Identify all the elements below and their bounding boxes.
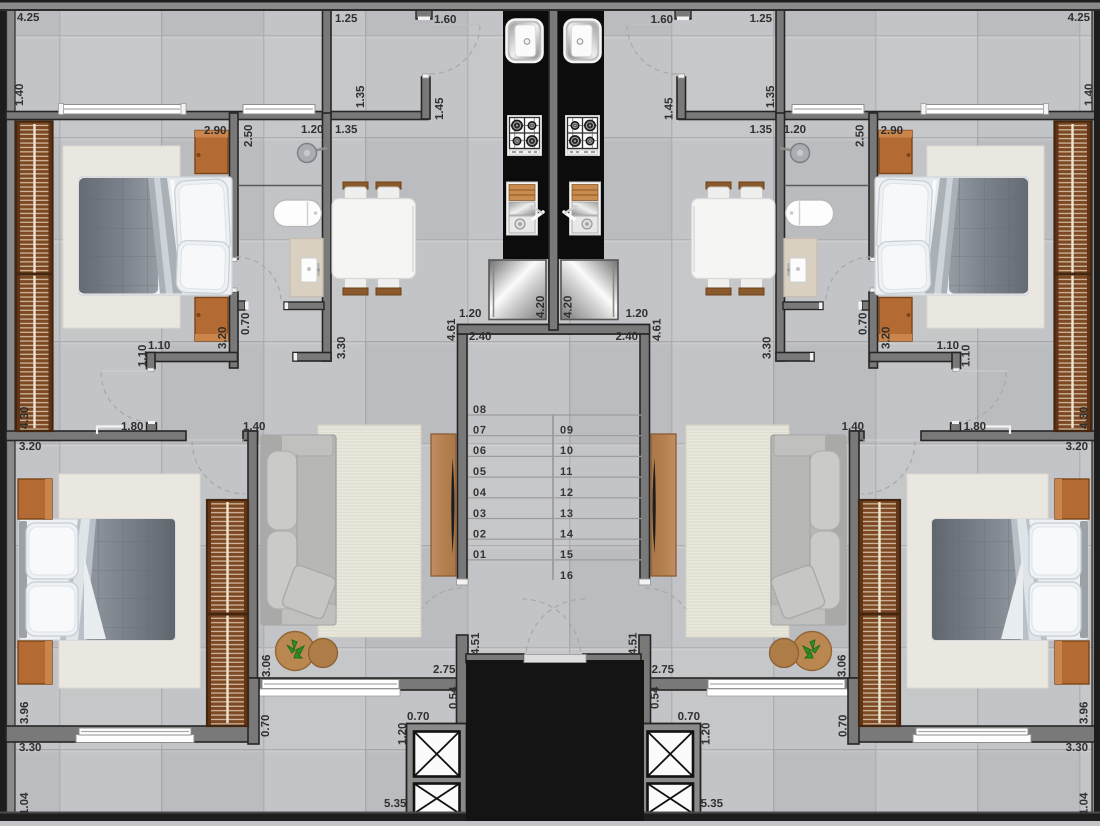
- svg-text:2.90: 2.90: [881, 125, 903, 137]
- svg-text:1.25: 1.25: [335, 13, 358, 25]
- svg-text:4.30: 4.30: [19, 407, 31, 429]
- svg-text:3.20: 3.20: [217, 327, 229, 349]
- svg-text:02: 02: [473, 529, 487, 541]
- svg-text:11: 11: [560, 466, 573, 478]
- svg-text:0.70: 0.70: [260, 715, 272, 737]
- svg-text:5.35: 5.35: [384, 798, 407, 810]
- svg-text:05: 05: [473, 466, 487, 478]
- svg-text:0.70: 0.70: [678, 711, 700, 723]
- svg-text:1.20: 1.20: [301, 124, 323, 136]
- svg-text:1.20: 1.20: [397, 723, 409, 745]
- svg-text:0.70: 0.70: [407, 711, 429, 723]
- svg-text:2.50: 2.50: [243, 125, 255, 147]
- svg-text:1.10: 1.10: [137, 345, 149, 367]
- svg-text:4.25: 4.25: [17, 12, 40, 24]
- svg-text:2.50: 2.50: [855, 125, 867, 147]
- svg-text:4.20: 4.20: [563, 296, 575, 318]
- svg-text:5.35: 5.35: [701, 798, 724, 810]
- svg-text:1.40: 1.40: [14, 84, 26, 106]
- svg-text:0.70: 0.70: [240, 313, 252, 335]
- svg-text:3.20: 3.20: [881, 327, 893, 349]
- svg-text:16: 16: [560, 570, 574, 582]
- svg-text:2.90: 2.90: [204, 125, 226, 137]
- svg-text:1.45: 1.45: [434, 97, 446, 120]
- svg-text:3.30: 3.30: [336, 337, 348, 359]
- svg-text:1.20: 1.20: [626, 308, 648, 320]
- svg-text:0.54: 0.54: [650, 686, 662, 709]
- svg-text:3.30: 3.30: [762, 337, 774, 359]
- svg-text:04: 04: [473, 487, 487, 499]
- svg-text:4.51: 4.51: [628, 632, 640, 655]
- svg-text:13: 13: [560, 508, 574, 520]
- svg-text:0.70: 0.70: [838, 715, 850, 737]
- svg-text:1.04: 1.04: [1079, 792, 1091, 815]
- svg-text:1.20: 1.20: [784, 124, 806, 136]
- svg-text:3.20: 3.20: [19, 441, 41, 453]
- svg-text:2.75: 2.75: [652, 664, 675, 676]
- svg-text:3.96: 3.96: [19, 702, 31, 724]
- svg-text:1.80: 1.80: [121, 421, 143, 433]
- svg-text:2.75: 2.75: [433, 664, 456, 676]
- svg-text:1.40: 1.40: [842, 421, 864, 433]
- svg-text:1.04: 1.04: [19, 792, 31, 815]
- svg-text:0.54: 0.54: [448, 686, 460, 709]
- svg-text:1.40: 1.40: [1084, 84, 1096, 106]
- svg-text:1.20: 1.20: [701, 723, 713, 745]
- svg-text:1.20: 1.20: [459, 308, 481, 320]
- svg-text:1.35: 1.35: [765, 85, 777, 108]
- svg-text:1.10: 1.10: [148, 340, 170, 352]
- svg-text:4.30: 4.30: [1079, 407, 1091, 429]
- svg-text:2.40: 2.40: [469, 331, 491, 343]
- svg-text:12: 12: [560, 487, 574, 499]
- svg-text:4.20: 4.20: [535, 296, 547, 318]
- svg-text:08: 08: [473, 404, 487, 416]
- svg-text:4.25: 4.25: [1068, 12, 1091, 24]
- svg-text:1.10: 1.10: [961, 345, 973, 367]
- svg-text:1.60: 1.60: [434, 14, 456, 26]
- svg-text:1.40: 1.40: [243, 421, 265, 433]
- svg-text:03: 03: [473, 508, 487, 520]
- svg-text:09: 09: [560, 425, 574, 437]
- svg-text:3.06: 3.06: [261, 655, 273, 677]
- svg-text:1.45: 1.45: [664, 97, 676, 120]
- svg-text:1.80: 1.80: [964, 421, 986, 433]
- svg-text:3.96: 3.96: [1079, 702, 1091, 724]
- svg-text:3.30: 3.30: [19, 742, 41, 754]
- svg-text:3.06: 3.06: [837, 655, 849, 677]
- svg-text:3.20: 3.20: [1066, 441, 1088, 453]
- svg-text:4.61: 4.61: [446, 318, 458, 341]
- svg-text:4.61: 4.61: [652, 318, 664, 341]
- svg-text:4.51: 4.51: [470, 632, 482, 655]
- svg-text:1.10: 1.10: [937, 340, 959, 352]
- svg-text:1.25: 1.25: [750, 13, 773, 25]
- svg-text:01: 01: [473, 549, 487, 561]
- svg-text:14: 14: [560, 529, 574, 541]
- svg-text:06: 06: [473, 445, 487, 457]
- svg-text:1.35: 1.35: [335, 124, 358, 136]
- svg-text:2.40: 2.40: [616, 331, 638, 343]
- svg-text:3.30: 3.30: [1066, 742, 1088, 754]
- svg-text:1.35: 1.35: [750, 124, 773, 136]
- svg-text:10: 10: [560, 445, 574, 457]
- svg-text:0.70: 0.70: [858, 313, 870, 335]
- svg-text:07: 07: [473, 425, 487, 437]
- svg-text:1.60: 1.60: [651, 14, 673, 26]
- svg-text:15: 15: [560, 549, 574, 561]
- svg-text:1.35: 1.35: [355, 85, 367, 108]
